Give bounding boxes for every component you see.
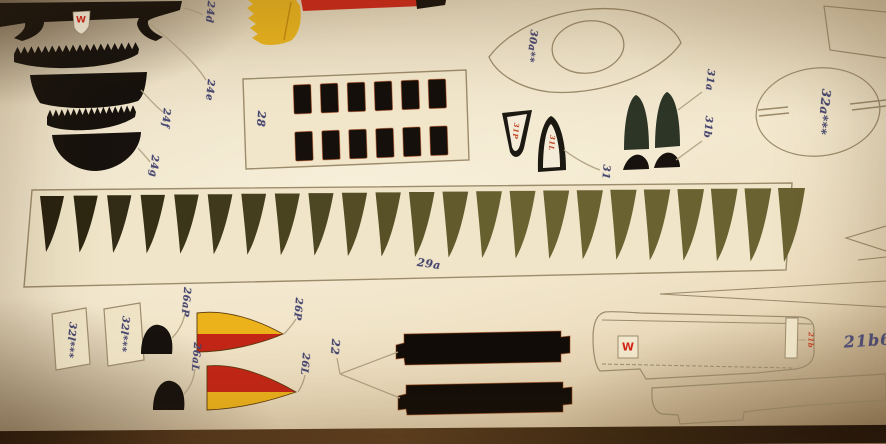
paper-model-sheet: 24d 24e 24f 24g 28 30a** 31P 31L 31 31a … — [0, 0, 886, 444]
part-24-dome-band — [52, 132, 141, 171]
part-21b-slat — [785, 318, 798, 358]
parts-sheet-art — [0, 0, 886, 444]
part-28-cutout — [349, 129, 367, 159]
part-28-cutout — [374, 81, 392, 111]
label-24f: 24f — [159, 108, 171, 129]
part-22-bar-1 — [396, 331, 570, 365]
right-edge-line — [858, 257, 886, 260]
crescent-part-2 — [654, 153, 680, 168]
part-26L-upper-red — [207, 366, 296, 392]
right-edge-dart — [846, 226, 886, 251]
label-21b-red: 21b — [807, 332, 815, 348]
label-31P-red: 31P — [512, 122, 520, 139]
label-26P: 26P — [291, 297, 303, 321]
part-26P-upper-yellow — [197, 312, 283, 334]
label-31a: 31a — [703, 69, 715, 92]
part-22-bar-2 — [398, 382, 572, 415]
part-24e-sawtooth-band — [14, 42, 139, 68]
label-24e: 24e — [203, 79, 215, 102]
label-22: 22 — [329, 338, 341, 355]
part-28-cutout — [376, 128, 394, 158]
part-28-cutout — [347, 82, 365, 112]
right-strip-outline — [660, 281, 886, 307]
w-emblem-top: W — [76, 17, 86, 26]
label-21b6-blue: 21b6 — [843, 331, 886, 350]
part-26aL-half-dome — [153, 381, 184, 410]
label-26aP: 26aP — [179, 287, 192, 318]
part-28-cutout — [320, 83, 338, 113]
part-28-cutout — [293, 84, 311, 114]
top-right-box-corner — [824, 6, 886, 58]
label-26L: 26L — [298, 352, 310, 375]
part-24d-cowl-band — [0, 1, 182, 41]
part-26L-lower-yellow — [207, 392, 296, 410]
label-24d: 24d — [203, 0, 215, 23]
part-28-cutout — [403, 127, 421, 157]
red-bar-black-end — [416, 0, 446, 9]
label-31b: 31b — [701, 115, 713, 138]
part-28-cutout — [401, 80, 419, 110]
lower-fuselage-outline — [652, 374, 886, 424]
part-31b-dome — [655, 92, 680, 148]
part-28-cutout — [322, 130, 340, 160]
label-31: 31 — [599, 164, 610, 180]
w-emblem-bottom: W — [622, 342, 634, 353]
part-21b-top-line — [602, 320, 812, 324]
label-29a: 29a — [416, 257, 441, 271]
crescent-part-1 — [623, 155, 649, 170]
part-26aP-half-dome — [141, 325, 172, 354]
part-24g-sawtooth-band — [47, 105, 136, 130]
part-28-cutout — [428, 79, 446, 109]
label-24g: 24g — [147, 154, 159, 177]
part-21b-bottom-dashed — [602, 364, 792, 368]
part-31a-dome — [624, 95, 649, 150]
part-28-cutout — [430, 126, 448, 156]
part-28-cutout — [295, 131, 313, 161]
part-24f-band — [30, 72, 147, 108]
label-28: 28 — [255, 110, 267, 127]
part-29a-strip — [24, 183, 792, 287]
label-31L-red: 31L — [548, 135, 556, 152]
yellow-sawtooth-part — [247, 0, 301, 45]
part-26P-lower-red — [197, 334, 283, 352]
label-26aL: 26aL — [189, 342, 202, 372]
part-30a-center-hole — [549, 16, 628, 78]
